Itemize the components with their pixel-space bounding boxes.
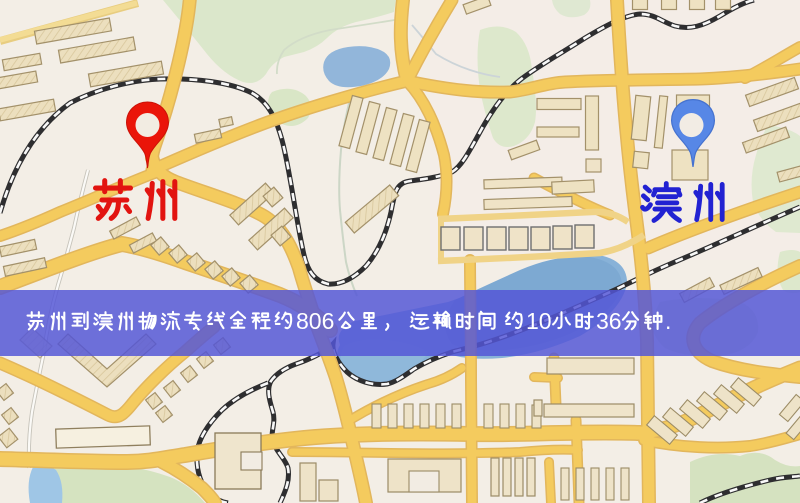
svg-text:10: 10 [526,308,552,334]
svg-text:806: 806 [296,308,334,334]
svg-text:.: . [665,308,671,334]
svg-text:36: 36 [596,308,622,334]
